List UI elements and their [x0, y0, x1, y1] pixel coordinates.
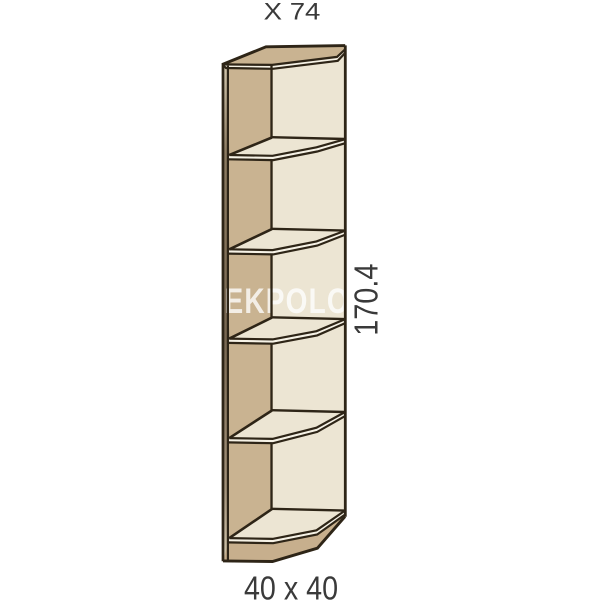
- svg-text:X 74: X 74: [264, 0, 321, 25]
- svg-text:EKPOLO: EKPOLO: [225, 281, 350, 321]
- svg-text:170.4: 170.4: [348, 264, 385, 336]
- svg-text:40 x 40: 40 x 40: [244, 570, 338, 600]
